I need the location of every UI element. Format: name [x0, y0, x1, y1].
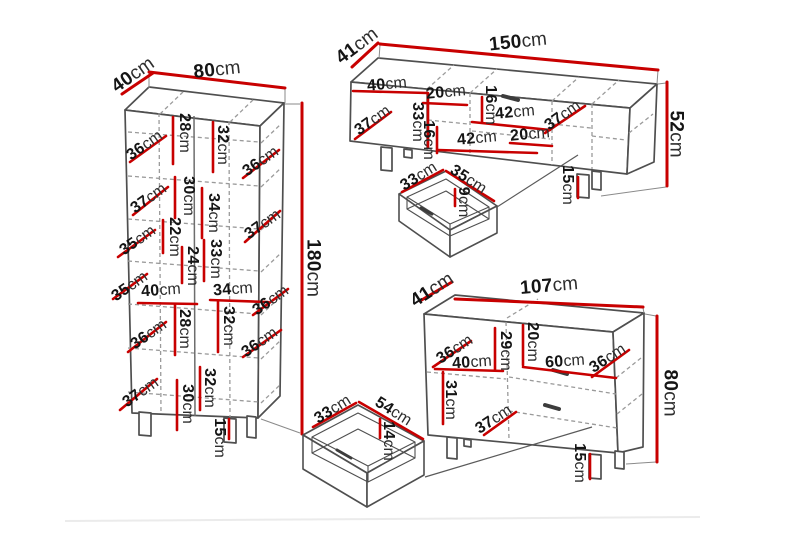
cabinet-interior-dim: 32cm: [220, 306, 236, 346]
chest-height-dim: 80cm: [661, 369, 680, 416]
chest-width-dim: 107cm: [519, 274, 578, 298]
chest-interior-dim: 20cm: [524, 322, 540, 362]
tv-stand-interior-dim: 33cm: [409, 102, 425, 142]
chest-interior-dim: 60cm: [545, 353, 586, 372]
furniture-dimension-diagram: 40cm 80cm 180cm 15cm 36cm 28cm 32cm 36cm…: [0, 0, 800, 533]
chest-interior-dim: 40cm: [452, 354, 493, 373]
cabinet-interior-dim: 32cm: [214, 125, 230, 165]
cabinet-interior-dim: 28cm: [176, 309, 192, 349]
tv-stand-leg-dim: 15cm: [559, 165, 575, 205]
cabinet-leg-dim: 15cm: [211, 418, 227, 458]
cabinet-interior-dim: 40cm: [141, 282, 182, 301]
chest-drawer-height-dim: 14cm: [380, 421, 396, 461]
chest-interior-dim: 31cm: [442, 380, 458, 420]
chest-interior-dim: 29cm: [497, 331, 513, 371]
cabinet-width-dim: 80cm: [193, 58, 242, 82]
cabinet-height-dim: 180cm: [304, 239, 323, 297]
cabinet-interior-dim: 34cm: [213, 281, 254, 300]
cabinet-interior-dim: 33cm: [207, 239, 223, 279]
tv-drawer-height-dim: 9cm: [455, 187, 471, 218]
chest-leg-dim: 15cm: [571, 443, 587, 483]
cabinet-interior-dim: 28cm: [176, 113, 192, 153]
floor-shadow-line: [65, 517, 700, 521]
cabinet-interior-dim: 32cm: [201, 368, 217, 408]
cabinet-interior-dim: 24cm: [184, 246, 200, 286]
cabinet-interior-dim: 30cm: [179, 384, 195, 424]
cabinet-interior-dim: 22cm: [166, 217, 182, 257]
tv-stand-height-dim: 52cm: [667, 110, 686, 157]
cabinet-interior-dim: 34cm: [205, 193, 221, 233]
cabinet-interior-dim: 30cm: [180, 176, 196, 216]
